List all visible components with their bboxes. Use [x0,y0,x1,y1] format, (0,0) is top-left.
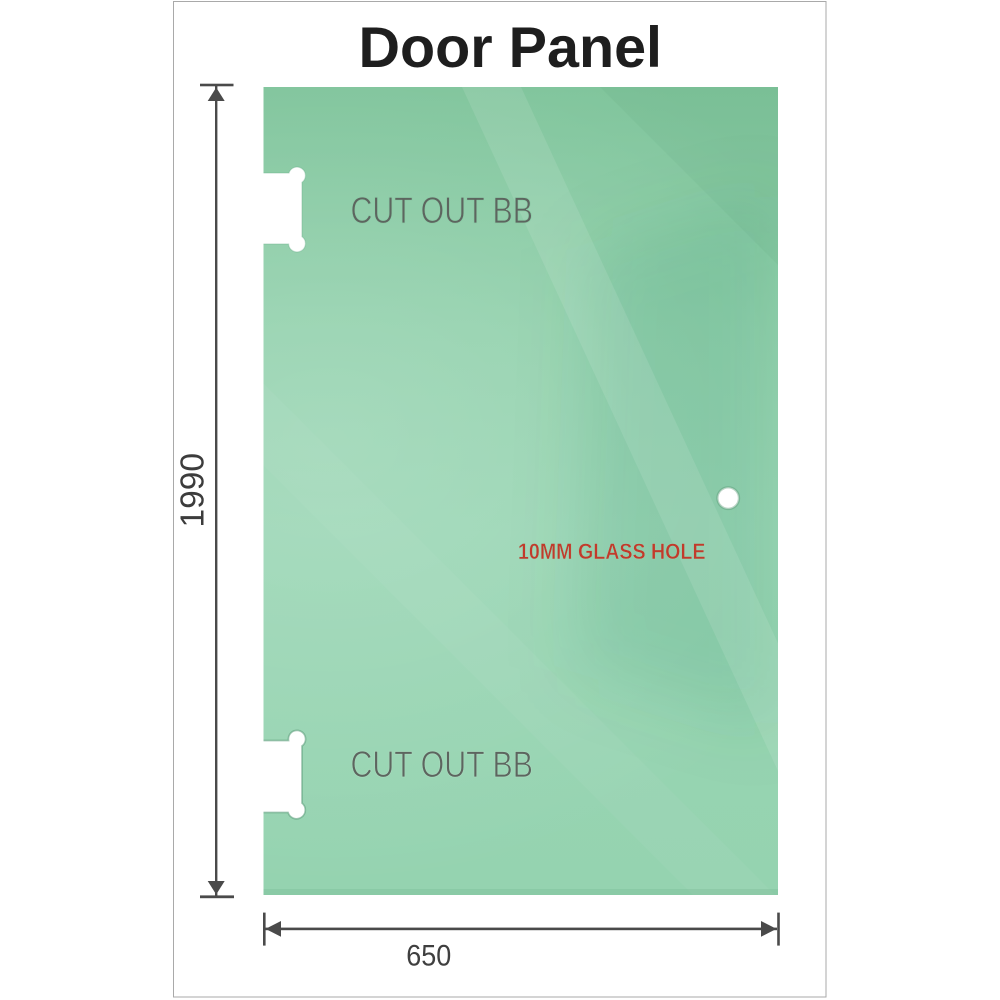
svg-text:CUT OUT BB: CUT OUT BB [351,190,534,231]
svg-text:1990: 1990 [174,453,211,528]
svg-text:10MM GLASS HOLE: 10MM GLASS HOLE [518,539,706,564]
svg-text:Door Panel: Door Panel [359,16,663,80]
svg-text:650: 650 [406,940,451,973]
svg-text:CUT OUT BB: CUT OUT BB [351,744,534,785]
